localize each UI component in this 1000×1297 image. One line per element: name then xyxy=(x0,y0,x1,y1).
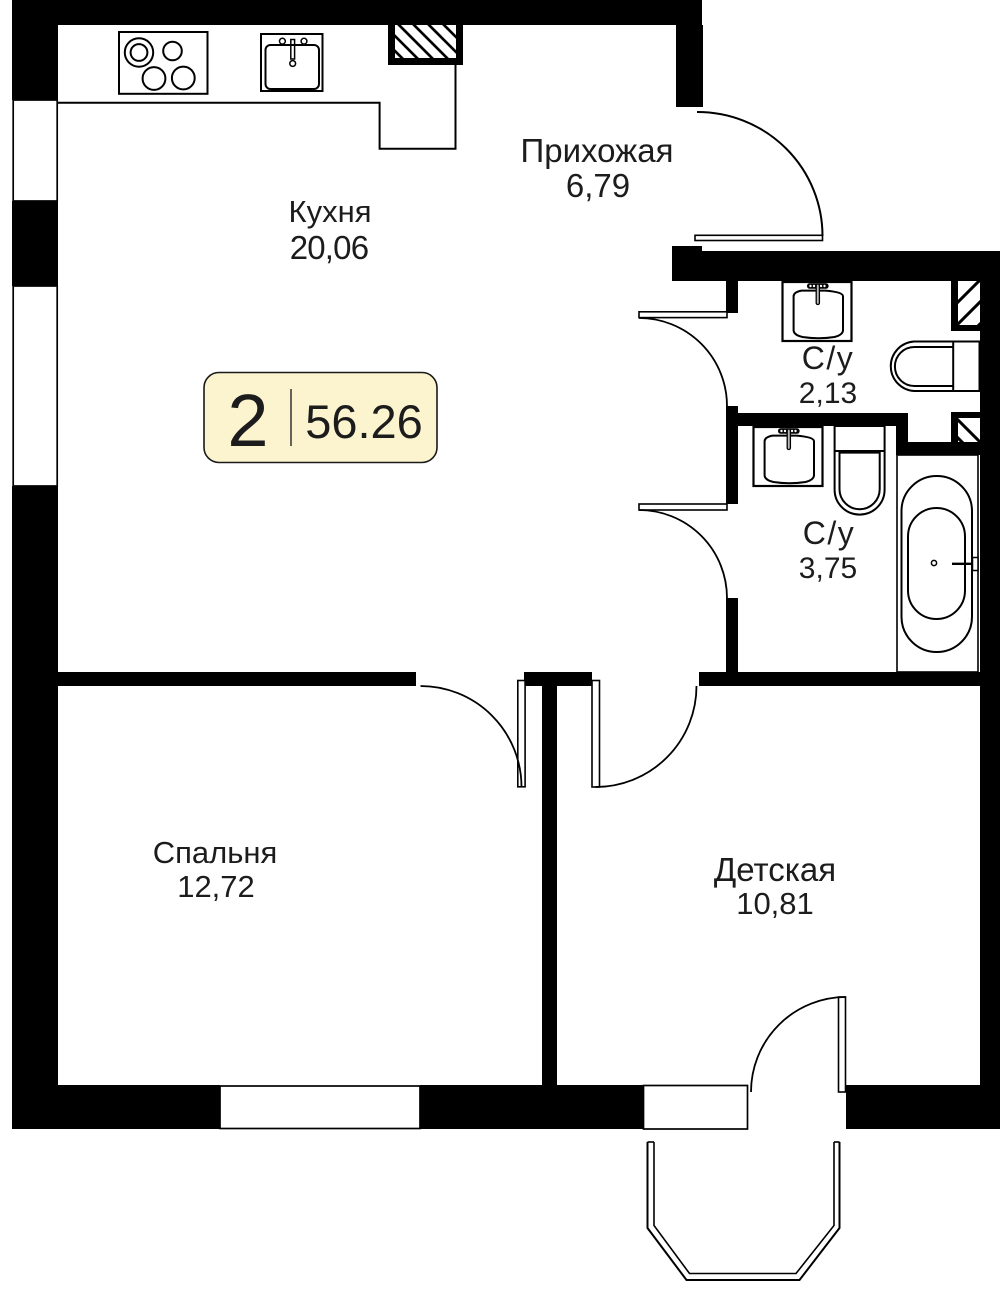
svg-text:Прихожая: Прихожая xyxy=(521,132,674,169)
svg-text:56.26: 56.26 xyxy=(305,395,423,448)
svg-text:С/у: С/у xyxy=(803,515,856,551)
svg-text:Детская: Детская xyxy=(714,851,836,888)
svg-text:2,13: 2,13 xyxy=(799,377,857,410)
svg-text:Спальня: Спальня xyxy=(153,835,278,870)
svg-text:Кухня: Кухня xyxy=(289,194,372,229)
svg-text:6,79: 6,79 xyxy=(566,167,630,204)
svg-text:2: 2 xyxy=(227,379,268,462)
svg-text:3,75: 3,75 xyxy=(799,552,857,585)
svg-text:10,81: 10,81 xyxy=(736,886,814,921)
svg-text:12,72: 12,72 xyxy=(177,869,255,904)
svg-text:С/у: С/у xyxy=(802,340,855,376)
svg-text:20,06: 20,06 xyxy=(290,229,369,266)
